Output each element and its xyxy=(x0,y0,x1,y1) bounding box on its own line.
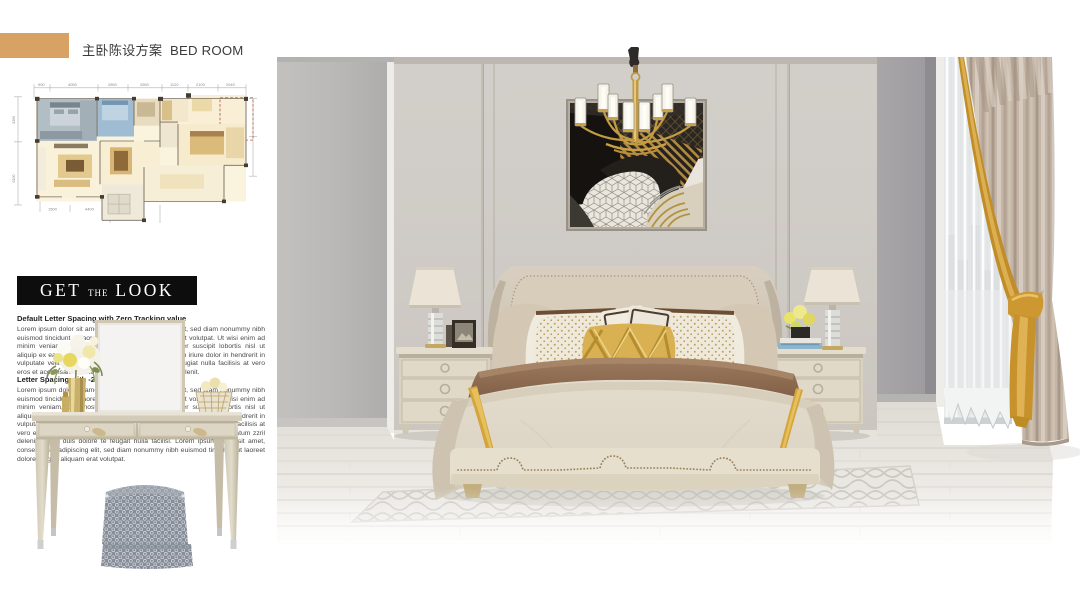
svg-text:3300: 3300 xyxy=(12,116,16,124)
svg-text:900: 900 xyxy=(38,83,45,87)
svg-text:4050: 4050 xyxy=(68,83,77,87)
svg-text:4400: 4400 xyxy=(85,208,94,212)
svg-text:1500: 1500 xyxy=(48,208,57,212)
svg-text:2100: 2100 xyxy=(196,83,205,87)
svg-text:1120: 1120 xyxy=(170,83,179,87)
svg-text:2940: 2940 xyxy=(226,83,235,87)
svg-text:2550: 2550 xyxy=(140,83,149,87)
svg-text:5100: 5100 xyxy=(12,174,16,182)
svg-text:2850: 2850 xyxy=(108,83,117,87)
